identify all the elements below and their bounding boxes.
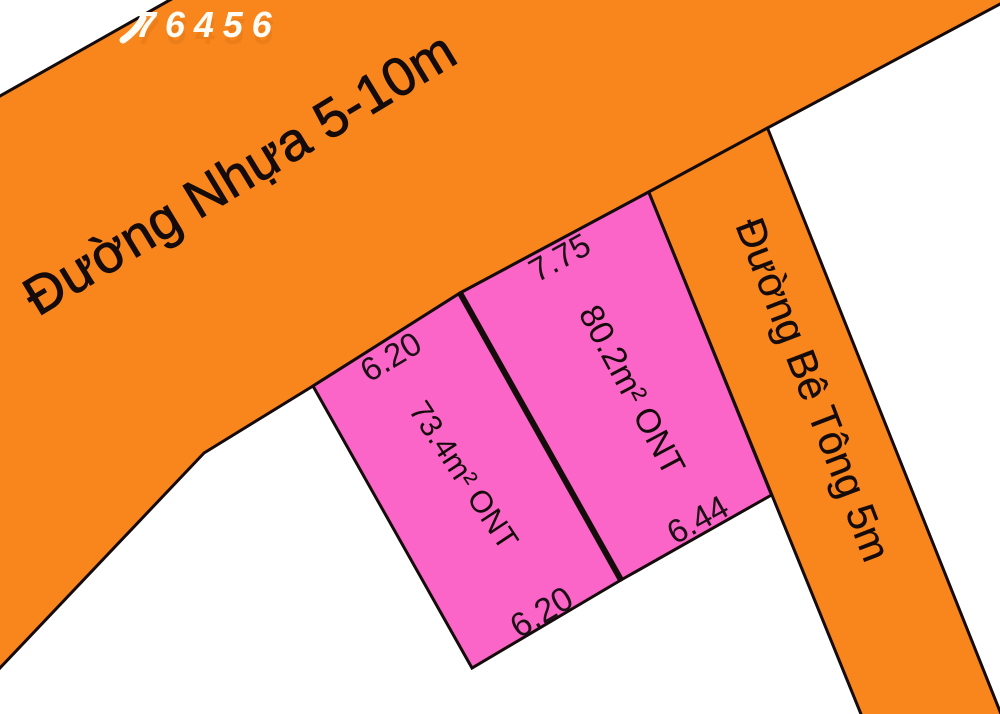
svg-text:76456: 76456	[136, 4, 281, 45]
